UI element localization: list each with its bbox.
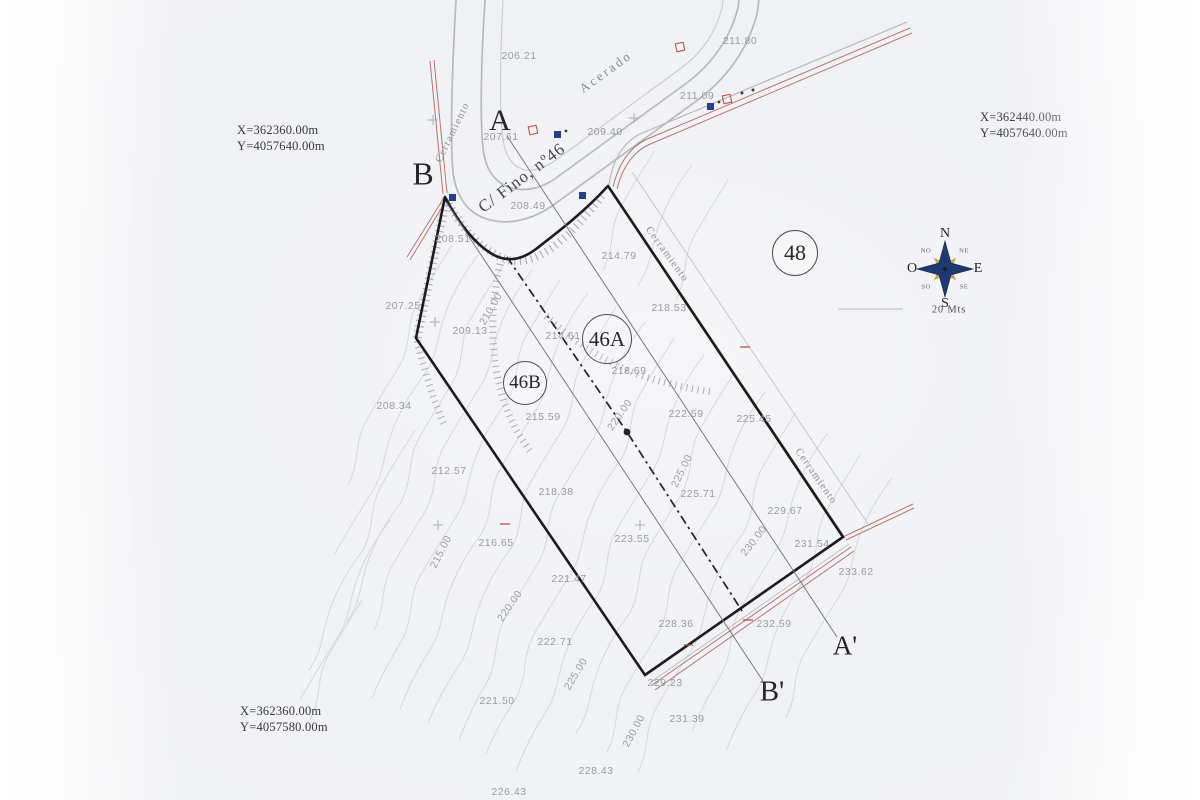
compass-southwest-label: SO (921, 284, 930, 291)
coordinate-label-top-left: X=362360.00m Y=4057640.00m (237, 122, 325, 155)
sidewalk-line (500, 0, 723, 170)
parcel-badge-46a: 46A (582, 314, 632, 364)
spot-elevation-label: 209.40 (587, 126, 622, 138)
site-plan-sheet: X=362360.00m Y=4057640.00m X=362440.00m … (0, 0, 1200, 800)
spot-elevation-label: 229.67 (767, 505, 802, 517)
utility-dashed-line (507, 257, 744, 614)
coordinate-x: X=362360.00m (237, 122, 325, 138)
spot-elevation-label: 225.71 (680, 488, 715, 500)
compass-north-label: N (940, 226, 950, 242)
compass-east-label: E (974, 261, 983, 277)
spot-elevation-label: 211.80 (723, 35, 757, 47)
spot-elevation-label: 215.59 (525, 411, 560, 423)
coordinate-label-bottom-left: X=362360.00m Y=4057580.00m (240, 703, 328, 736)
spot-elevation-label: 208.34 (376, 400, 411, 412)
spot-elevation-label: 218.53 (651, 302, 686, 314)
spot-elevation-label: 231.39 (669, 713, 704, 725)
spot-elevation-label: 226.43 (491, 786, 526, 798)
spot-elevation-label: 221.50 (479, 695, 514, 707)
section-line-a (507, 136, 837, 637)
spot-elevation-label: 222.71 (537, 636, 572, 648)
spot-elevation-label: 221.47 (551, 573, 586, 585)
spot-elevation-label: 231.54 (794, 538, 829, 550)
scale-label: 20 Mts (932, 305, 966, 316)
section-marker-a-prime: A' (833, 631, 857, 662)
spot-elevation-label: 206.21 (501, 50, 536, 62)
section-marker-b: B (412, 156, 433, 193)
spot-elevation-label: 207.25 (385, 300, 420, 312)
parcel-badge-48: 48 (772, 230, 818, 276)
spot-elevation-label: 212.57 (431, 465, 466, 477)
spot-elevation-label: 208.49 (510, 200, 545, 212)
road2-curb (609, 22, 907, 185)
utility-node-dot (624, 429, 631, 436)
spot-elevation-label: 218.69 (611, 365, 646, 377)
spot-elevation-label: 228.36 (658, 618, 693, 630)
section-line-b (446, 202, 763, 681)
spot-elevation-label: 233.62 (838, 566, 873, 578)
spot-elevation-label: 229.23 (647, 677, 682, 689)
compass-northeast-label: NE (959, 248, 969, 255)
spot-elevation-label: 222.59 (668, 408, 703, 420)
compass-southeast-label: SE (960, 284, 969, 291)
coordinate-x: X=362440.00m (980, 109, 1068, 125)
spot-elevation-label: 232.59 (756, 618, 791, 630)
spot-elevation-label: 208.51 (435, 233, 470, 245)
spot-elevation-label: 214.79 (601, 250, 636, 262)
coordinate-label-top-right: X=362440.00m Y=4057640.00m (980, 109, 1068, 142)
spot-elevation-label: 211.09 (680, 90, 714, 102)
coordinate-x: X=362360.00m (240, 703, 328, 719)
spot-elevation-label: 216.65 (478, 537, 513, 549)
spot-elevation-label: 207.61 (483, 131, 518, 143)
spot-elevation-label: 225.45 (736, 413, 771, 425)
spot-elevation-label: 228.43 (578, 765, 613, 777)
spot-elevation-label: 223.55 (614, 533, 649, 545)
spot-elevation-label: 214.61 (545, 330, 580, 342)
coordinate-y: Y=4057580.00m (240, 719, 328, 735)
compass-west-label: O (907, 261, 917, 277)
spot-elevation-label: 209.13 (452, 325, 487, 337)
compass-northwest-label: NO (921, 248, 931, 255)
coordinate-y: Y=4057640.00m (980, 125, 1068, 141)
spot-elevation-label: 218.38 (538, 486, 573, 498)
coordinate-y: Y=4057640.00m (237, 138, 325, 154)
section-marker-b-prime: B' (760, 676, 785, 709)
parcel-badge-46b: 46B (503, 361, 547, 405)
